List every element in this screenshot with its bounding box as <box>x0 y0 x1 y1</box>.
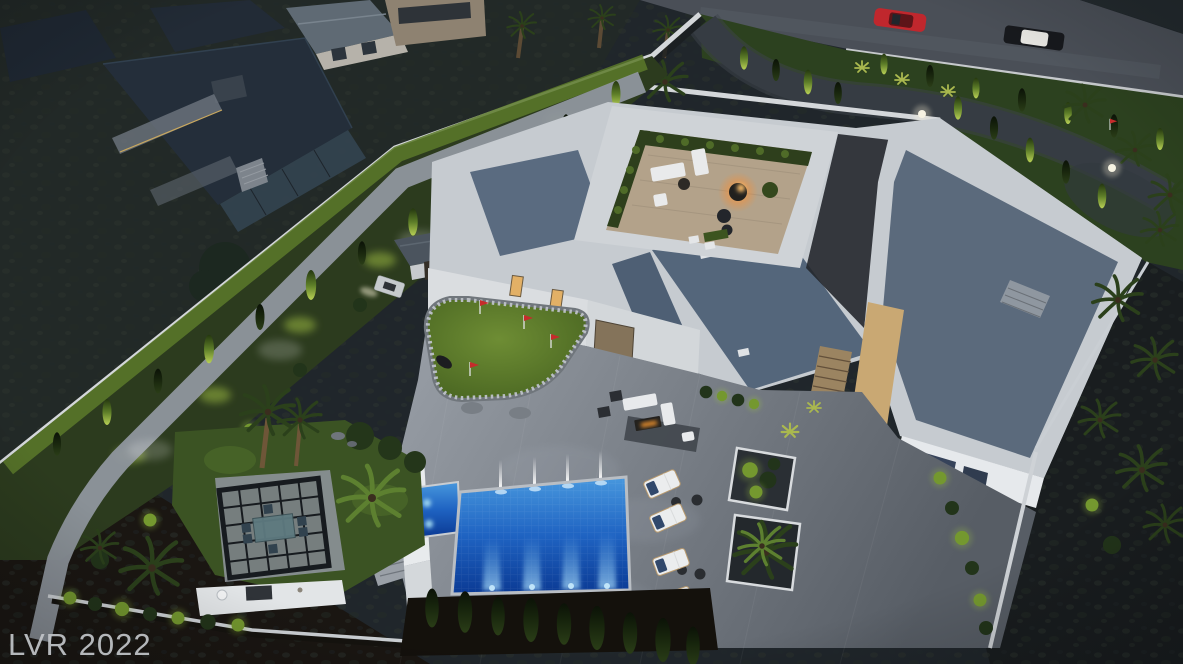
scene-canvas <box>0 0 1183 664</box>
vignette <box>0 0 1183 664</box>
aerial-estate-rendering: LVR 2022 <box>0 0 1183 664</box>
watermark: LVR 2022 <box>8 629 152 660</box>
